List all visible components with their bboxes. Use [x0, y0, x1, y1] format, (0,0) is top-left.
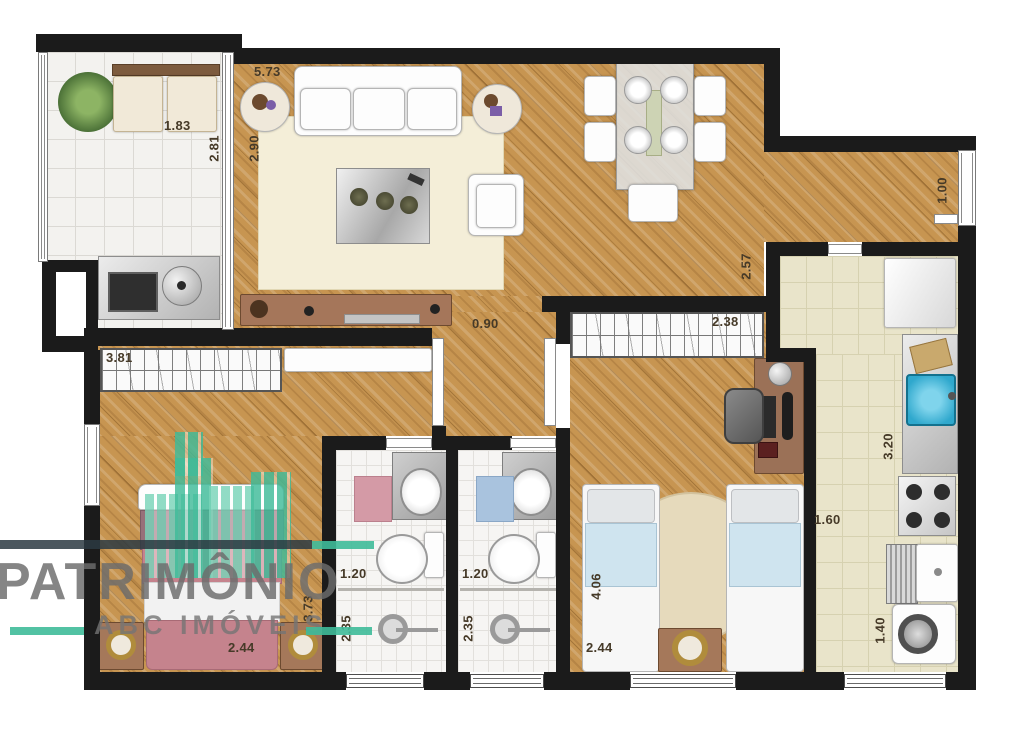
- floor-plan: 1.83 2.81 5.73 2.90 0.90 2.57 1.00 3.20 …: [0, 0, 1024, 735]
- wall-segment: [84, 672, 346, 690]
- bed-blanket-pink: [142, 548, 282, 584]
- bathroom1-window: [346, 674, 424, 688]
- dining-chair: [694, 122, 726, 162]
- wall-segment: [958, 226, 976, 690]
- dim-bath1-width: 1.20: [340, 566, 367, 581]
- master-dresser: [284, 348, 432, 372]
- bathroom2-window: [470, 674, 544, 688]
- dim-bedroom2-width: 2.44: [586, 640, 613, 655]
- stove-burner: [906, 484, 922, 500]
- dim-bedroom2-wardrobe: 2.38: [712, 314, 739, 329]
- bathroom2-door: [510, 438, 556, 448]
- place-setting: [624, 126, 652, 154]
- shaft-duct: [56, 272, 86, 336]
- bath2-sink: [510, 468, 552, 516]
- wall-segment: [556, 450, 570, 672]
- master-bedroom-window: [84, 424, 100, 506]
- bed-sheet: [144, 582, 280, 622]
- place-setting: [660, 126, 688, 154]
- nightstand-lamp: [288, 630, 318, 660]
- bath2-shower-divider: [460, 588, 556, 591]
- entry-corridor-floor: [764, 152, 958, 242]
- dim-kitchen-width: 1.60: [814, 512, 841, 527]
- nightstand-lamp: [672, 630, 708, 666]
- balcony-sliding-door: [222, 52, 234, 330]
- dim-kitchen-depth: 3.20: [881, 430, 896, 464]
- laundry-sink-ridges: [886, 544, 918, 604]
- sofa-cushion: [353, 88, 405, 130]
- bench-cushion: [113, 76, 163, 132]
- wall-segment: [542, 296, 780, 312]
- wall-segment: [230, 48, 780, 64]
- dining-chair: [628, 184, 678, 222]
- dining-chair: [584, 122, 616, 162]
- dim-laundry-width: 1.40: [873, 614, 888, 648]
- dim-living-width: 5.73: [254, 64, 281, 79]
- keyboard: [782, 392, 793, 440]
- kitchen-sink: [906, 374, 956, 426]
- wall-segment: [322, 450, 336, 672]
- wall-segment: [432, 436, 512, 450]
- wall-segment: [736, 672, 844, 690]
- bed-pillow-band: [140, 510, 284, 550]
- bed-pillow: [731, 489, 799, 523]
- sideboard-plant: [250, 300, 268, 318]
- dim-hall-width: 0.90: [472, 316, 499, 331]
- bathroom1-door: [386, 438, 432, 448]
- stove-burner: [906, 512, 922, 528]
- bedroom2-window: [630, 674, 736, 688]
- bed-blanket-blue: [729, 523, 801, 587]
- dim-bath2-width: 1.20: [462, 566, 489, 581]
- desk-lamp: [768, 362, 792, 386]
- wall-segment: [322, 436, 386, 450]
- bath1-sink: [400, 468, 442, 516]
- dim-living-depth: 2.90: [247, 132, 262, 166]
- bath1-shower-divider: [338, 588, 444, 591]
- sideboard-tray: [344, 314, 420, 324]
- dining-chair: [694, 76, 726, 116]
- bed-foot-blanket: [146, 620, 278, 670]
- dim-master-wardrobe: 3.81: [106, 350, 133, 365]
- side-table-decor: [490, 106, 502, 116]
- desk-accessory: [758, 442, 778, 458]
- desk-chair: [724, 388, 764, 444]
- wall-segment: [424, 672, 470, 690]
- entry-door-opening: [958, 150, 976, 226]
- sofa-cushion: [407, 88, 457, 130]
- master-bed: [138, 484, 284, 670]
- master-bedroom-door: [432, 338, 444, 426]
- potted-plant: [58, 72, 118, 132]
- bath2-toilet-bowl: [488, 534, 540, 584]
- kitchen-window: [844, 674, 946, 688]
- side-table-decor: [266, 100, 276, 110]
- wall-segment: [84, 328, 432, 346]
- coffee-table-decor: [400, 196, 418, 214]
- dim-balcony-depth: 2.81: [207, 132, 222, 166]
- dim-bath1-depth: 2.35: [339, 612, 354, 646]
- wall-segment: [544, 672, 630, 690]
- dim-balcony-width: 1.83: [164, 118, 191, 133]
- kitchen-door: [828, 244, 862, 254]
- stove: [898, 476, 956, 536]
- coffee-table-decor: [376, 192, 394, 210]
- bedroom2-door: [544, 338, 556, 426]
- balcony-railing: [38, 52, 48, 262]
- wall-segment: [556, 436, 570, 450]
- dim-living-right: 2.57: [739, 250, 754, 284]
- watermark-rule-teal: [10, 627, 84, 635]
- wall-segment: [36, 34, 242, 52]
- dim-bedroom2-depth: 4.06: [589, 570, 604, 604]
- wall-segment: [946, 672, 976, 690]
- barbecue-grill: [108, 272, 158, 312]
- refrigerator: [884, 258, 956, 328]
- sideboard-knob: [304, 306, 314, 316]
- place-setting: [660, 76, 688, 104]
- sideboard-knob: [430, 304, 440, 314]
- bath1-toilet-bowl: [376, 534, 428, 584]
- bed-pillow: [587, 489, 655, 523]
- bed-headboard: [138, 484, 284, 510]
- dim-master-depth: 3.73: [301, 592, 316, 626]
- washer-door: [898, 614, 938, 654]
- dining-chair: [584, 76, 616, 116]
- sofa-cushion: [300, 88, 351, 130]
- stove-burner: [934, 484, 950, 500]
- wall-segment: [764, 136, 976, 152]
- kettle-knob: [177, 281, 186, 290]
- dim-bath2-depth: 2.35: [461, 612, 476, 646]
- bath1-shower-rod: [396, 628, 438, 632]
- entry-door-leaf: [934, 214, 958, 224]
- single-bed-right: [726, 484, 804, 672]
- wall-segment: [84, 506, 100, 690]
- sink-faucet: [948, 392, 956, 400]
- wall-segment: [446, 450, 458, 672]
- wall-segment: [84, 350, 100, 424]
- dim-entry-door: 1.00: [935, 174, 950, 208]
- coffee-table-decor: [350, 188, 368, 206]
- dim-master-width: 2.44: [228, 640, 255, 655]
- armchair-seat: [476, 184, 516, 228]
- stove-burner: [934, 512, 950, 528]
- place-setting: [624, 76, 652, 104]
- bench-back: [112, 64, 220, 76]
- wall-segment: [862, 242, 958, 256]
- laundry-drain: [934, 568, 942, 576]
- bath2-shower-rod: [508, 628, 550, 632]
- nightstand-lamp: [106, 630, 136, 660]
- bath1-rug: [354, 476, 392, 522]
- wall-segment: [556, 312, 570, 344]
- bath2-rug: [476, 476, 514, 522]
